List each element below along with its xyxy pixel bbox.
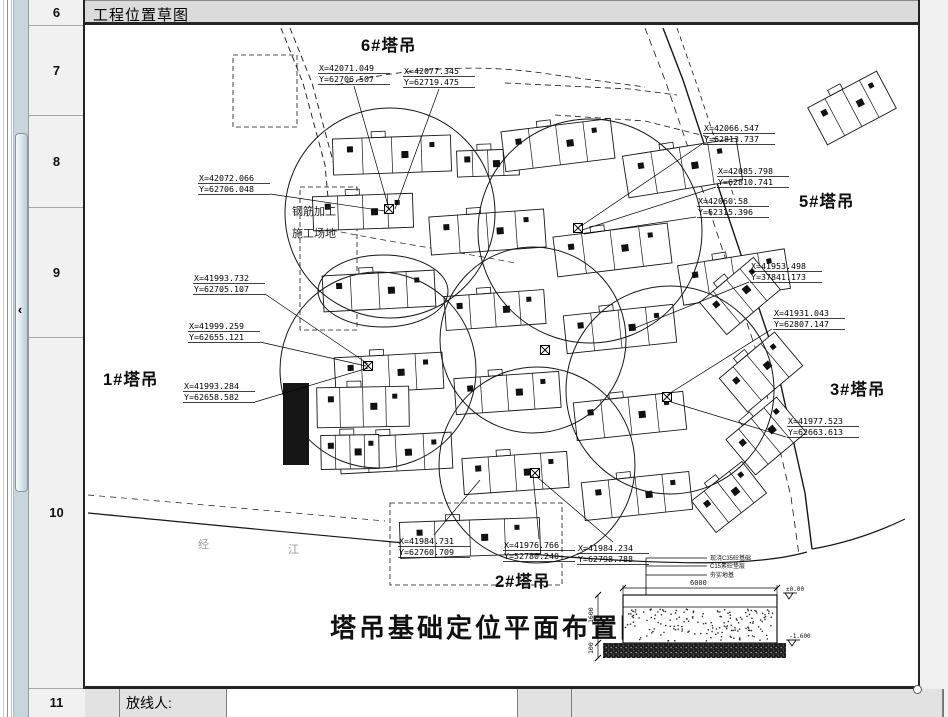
building [581, 465, 693, 520]
row-header-10-label: 10 [49, 505, 63, 520]
building [332, 129, 451, 175]
vertical-scrollbar[interactable] [13, 0, 28, 717]
row-header-8-label: 8 [53, 154, 60, 169]
crane-position-marker [541, 346, 550, 355]
bottom-cell-1[interactable] [85, 689, 120, 717]
yard-label-line1: 钢筋加工 [292, 204, 336, 218]
svg-text:Y=62798.788: Y=62798.788 [578, 554, 633, 564]
svg-text:X=41984.234: X=41984.234 [578, 543, 633, 553]
title-cell[interactable]: 工程位置草图 [85, 0, 918, 23]
building [461, 445, 569, 494]
building [715, 327, 802, 412]
crane-label: 5#塔吊 [799, 191, 854, 211]
building [321, 428, 380, 469]
svg-text:Y=62315.396: Y=62315.396 [698, 207, 753, 217]
row-header-11[interactable]: 11 [29, 688, 84, 717]
svg-text:Y=62807.147: Y=62807.147 [774, 319, 829, 329]
row-header-6-label: 6 [53, 5, 60, 20]
row-header-7[interactable]: 7 [29, 25, 84, 116]
bottom-cell-input[interactable] [227, 689, 518, 717]
crane-label: 2#塔吊 [495, 571, 550, 591]
dashed-enclosure [233, 55, 297, 127]
row-header-11-label: 11 [50, 695, 64, 710]
svg-text:X=42077.345: X=42077.345 [404, 66, 459, 76]
road-line [812, 519, 905, 549]
crane-label: 3#塔吊 [830, 379, 885, 399]
object-resize-handle[interactable] [913, 685, 922, 694]
svg-text:Y=62706.048: Y=62706.048 [199, 184, 254, 194]
crane-label: 6#塔吊 [361, 35, 416, 55]
svg-text:Y=62663.613: Y=62663.613 [788, 427, 843, 437]
building [317, 380, 410, 428]
setting-out-person-label: 放线人: [126, 693, 172, 713]
svg-text:X=42071.049: X=42071.049 [319, 63, 374, 73]
plan-title: 塔吊基础定位平面布置图 [330, 613, 649, 643]
site-plan-svg: X=42071.049Y=62706.507X=42077.345Y=62719… [85, 25, 918, 686]
svg-text:100: 100 [587, 642, 595, 654]
svg-text:Y=62719.475: Y=62719.475 [404, 77, 459, 87]
svg-text:X=41977.523: X=41977.523 [788, 416, 843, 426]
svg-text:X=41993.284: X=41993.284 [184, 381, 239, 391]
building [453, 365, 561, 414]
crane-position-marker [531, 469, 540, 478]
panel-collapse-arrow-icon[interactable]: ‹ [14, 301, 26, 319]
site-plan-drawing[interactable]: X=42071.049Y=62706.507X=42077.345Y=62719… [85, 25, 918, 686]
svg-text:X=41953.498: X=41953.498 [751, 261, 806, 271]
svg-text:Y=37841.173: Y=37841.173 [751, 272, 806, 282]
row-header-9[interactable]: 9 [29, 207, 84, 338]
svg-text:X=41984.731: X=41984.731 [399, 536, 454, 546]
yard-label-line2: 施工场地 [292, 226, 336, 240]
svg-text:X=41931.043: X=41931.043 [774, 308, 829, 318]
svg-text:1600: 1600 [587, 607, 595, 623]
building [500, 112, 615, 171]
road-name-char: 江 [288, 543, 299, 556]
row-header-10[interactable]: 10 [29, 337, 84, 689]
row-header-7-label: 7 [53, 63, 60, 78]
svg-text:Y=62810.741: Y=62810.741 [718, 177, 773, 187]
building [805, 66, 896, 145]
foundation-detail: 现浇C35砼基础C15素砼垫层夯实地基60001600100±0.00-1.60… [587, 554, 811, 661]
svg-text:X=42085.798: X=42085.798 [718, 166, 773, 176]
svg-text:X=42060.58: X=42060.58 [698, 196, 748, 206]
object-right-border [918, 0, 920, 689]
crane-label: 1#塔吊 [103, 369, 158, 389]
crane-position-marker [574, 224, 583, 233]
svg-text:X=41993.732: X=41993.732 [194, 273, 249, 283]
window-left-edge [0, 0, 13, 717]
svg-text:X=41976.766: X=41976.766 [504, 540, 559, 550]
road-line [505, 83, 677, 95]
svg-text:Y=62760.709: Y=62760.709 [399, 547, 454, 557]
svg-text:6000: 6000 [690, 579, 707, 587]
svg-text:夯实地基: 夯实地基 [710, 571, 734, 579]
svg-text:Y=52780.240: Y=52780.240 [504, 551, 559, 561]
svg-text:-1.600: -1.600 [789, 633, 811, 640]
svg-text:现浇C35砼基础: 现浇C35砼基础 [710, 554, 751, 562]
svg-text:X=41999.259: X=41999.259 [189, 321, 244, 331]
row-header-column: 6 7 8 9 10 11 [28, 0, 85, 717]
svg-text:X=42072.066: X=42072.066 [199, 173, 254, 183]
svg-text:Y=62658.582: Y=62658.582 [184, 392, 239, 402]
bottom-row-right-border [943, 689, 944, 717]
building [552, 217, 672, 277]
svg-text:X=42066.547: X=42066.547 [704, 123, 759, 133]
row-header-9-label: 9 [53, 265, 60, 280]
svg-text:Y=62655.121: Y=62655.121 [189, 332, 244, 342]
bottom-cell-2[interactable] [518, 689, 572, 717]
svg-text:C15素砼垫层: C15素砼垫层 [710, 562, 745, 570]
right-gutter [921, 0, 948, 689]
road-name-char: 经 [198, 538, 209, 551]
svg-text:Y=62706.507: Y=62706.507 [319, 74, 374, 84]
row-header-6[interactable]: 6 [29, 0, 84, 26]
crane-position-marker [663, 393, 672, 402]
svg-text:Y=62705.107: Y=62705.107 [194, 284, 249, 294]
svg-text:Y=62813.737: Y=62813.737 [704, 134, 759, 144]
coordinate-callout: X=42060.58Y=62315.396 [584, 196, 769, 234]
row-header-8[interactable]: 8 [29, 115, 84, 208]
bottom-cell-3[interactable] [572, 689, 943, 717]
svg-text:±0.00: ±0.00 [786, 586, 804, 593]
